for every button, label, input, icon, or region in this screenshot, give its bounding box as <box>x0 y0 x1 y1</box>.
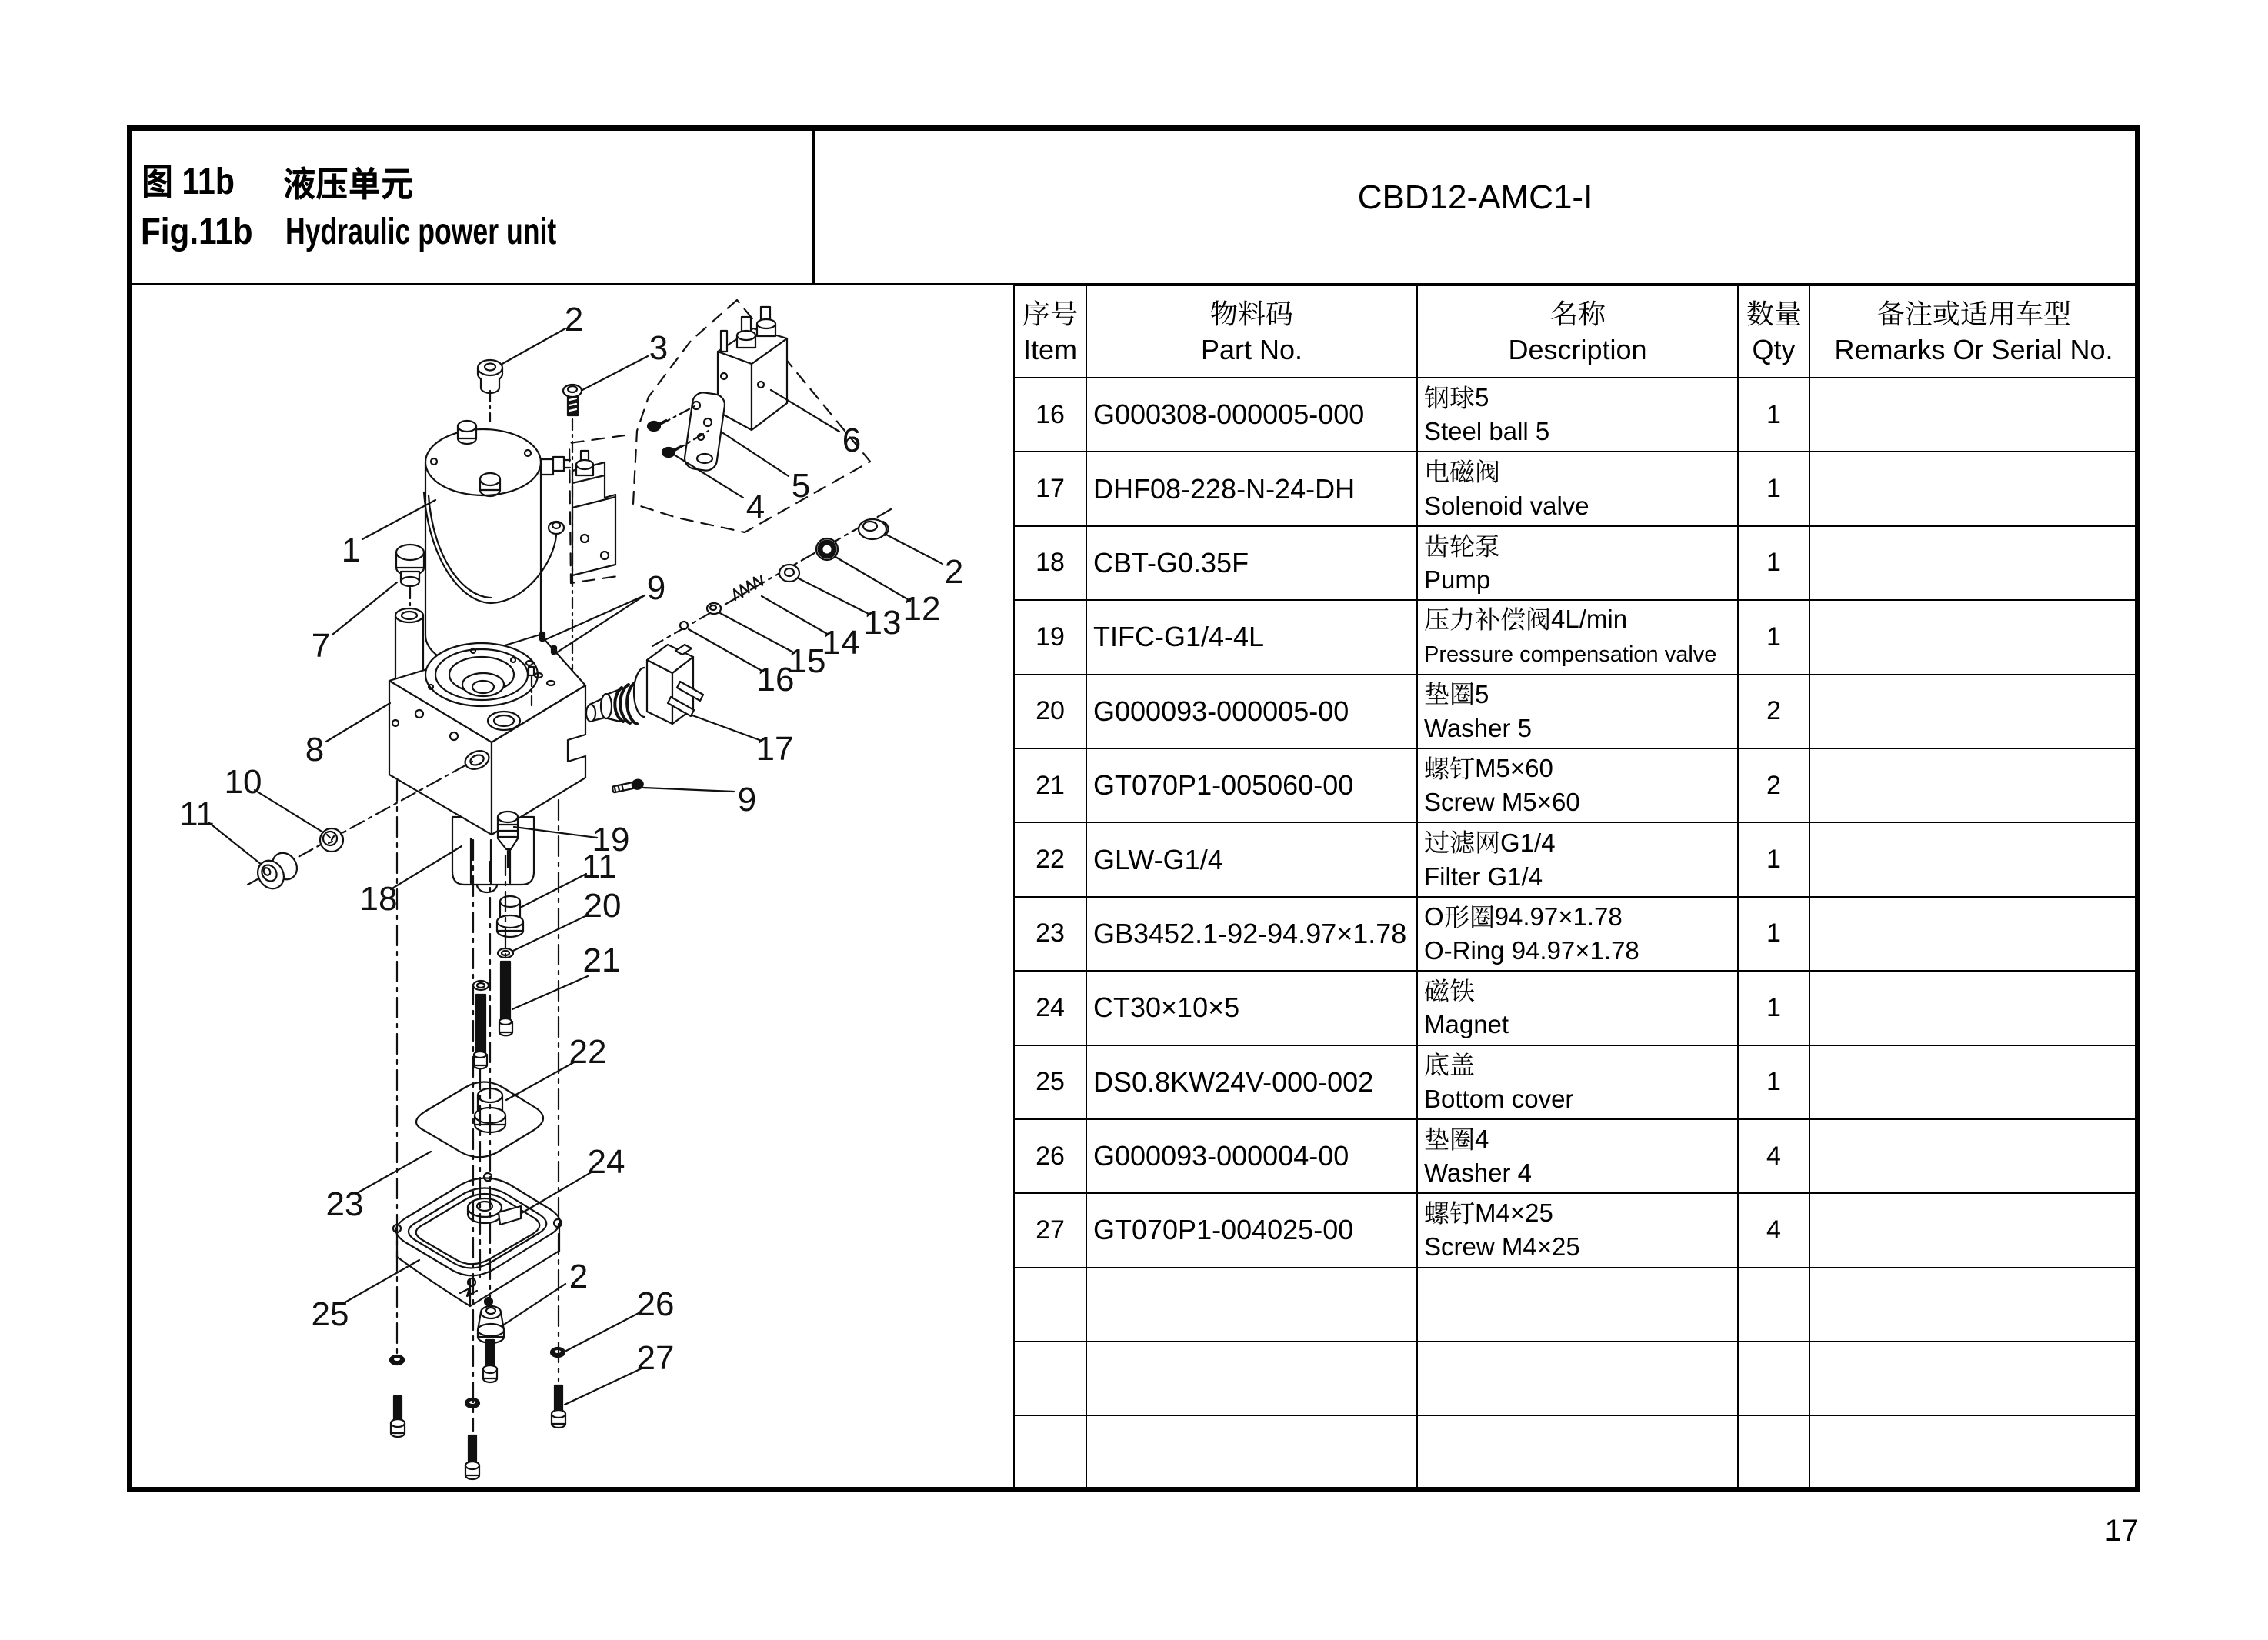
svg-text:9: 9 <box>647 569 665 607</box>
svg-text:26: 26 <box>637 1285 675 1323</box>
svg-text:11: 11 <box>179 795 215 833</box>
svg-text:11: 11 <box>582 848 617 885</box>
svg-text:17: 17 <box>756 730 794 768</box>
svg-text:27: 27 <box>637 1339 675 1377</box>
svg-text:25: 25 <box>312 1295 349 1333</box>
svg-text:14: 14 <box>822 624 860 662</box>
svg-text:16: 16 <box>757 661 795 698</box>
svg-text:2: 2 <box>569 1258 588 1295</box>
svg-text:5: 5 <box>792 467 810 505</box>
svg-text:20: 20 <box>584 887 622 925</box>
svg-text:1: 1 <box>342 532 360 569</box>
svg-text:24: 24 <box>588 1143 625 1181</box>
svg-text:6: 6 <box>842 422 861 459</box>
svg-text:23: 23 <box>326 1185 364 1223</box>
svg-text:12: 12 <box>903 590 941 628</box>
svg-text:3: 3 <box>649 329 668 367</box>
svg-text:7: 7 <box>312 627 330 665</box>
svg-text:18: 18 <box>360 880 398 918</box>
svg-text:22: 22 <box>569 1033 607 1071</box>
svg-text:9: 9 <box>738 781 756 818</box>
svg-text:21: 21 <box>583 942 621 979</box>
svg-text:13: 13 <box>864 604 902 642</box>
svg-text:10: 10 <box>225 763 262 801</box>
svg-text:8: 8 <box>305 731 324 768</box>
svg-text:2: 2 <box>945 553 963 591</box>
svg-text:4: 4 <box>746 488 765 526</box>
svg-text:2: 2 <box>565 301 583 338</box>
